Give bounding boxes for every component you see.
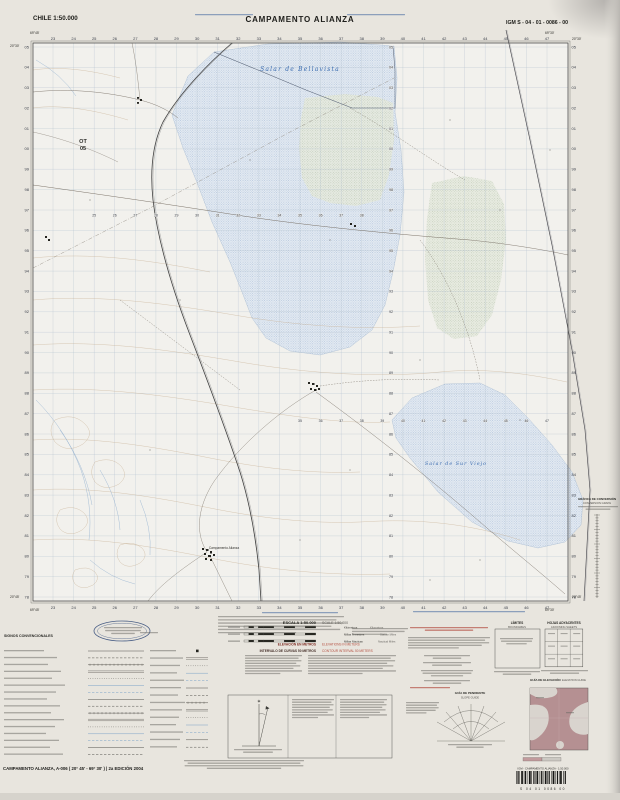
map-body: Salar de Bellavista Salar de Sur Viejo C… (10, 30, 591, 612)
neighbor-sheet-ref-line1: OT (79, 139, 87, 145)
easting-bottom: 25 (92, 605, 97, 610)
scale-bar-segment (249, 640, 254, 642)
northing-left: 91 (25, 329, 30, 334)
northing-right: 79 (572, 574, 577, 579)
legend-label (4, 705, 60, 706)
easting-top: 47 (545, 36, 550, 41)
easting-top: 39 (380, 36, 385, 41)
barcode-bar (516, 771, 517, 784)
corner-lon-ne: 69°30' (545, 31, 555, 35)
easting-top: 27 (133, 36, 138, 41)
easting-mid: 28 (154, 214, 158, 218)
fine-print-line (448, 744, 492, 745)
fine-print-line (500, 638, 533, 639)
legend-label (4, 733, 46, 734)
northing-interior: 05 (389, 45, 393, 49)
northing-right: 95 (572, 248, 577, 253)
fine-print-line (340, 707, 382, 708)
legend-label (4, 726, 55, 727)
northing-interior: 87 (389, 412, 393, 416)
northing-left: 78 (25, 594, 30, 599)
adjoining-sheet-name (548, 646, 555, 647)
salar-bellavista-label: Salar de Bellavista (260, 66, 340, 73)
legend-label (150, 739, 180, 740)
corner-lat-ne: 20°30' (572, 37, 582, 41)
vegetation-polygon-1 (299, 94, 394, 206)
scale-bar-left-label (228, 634, 240, 635)
contour-interval-en: CONTOUR INTERVAL 50 METERS (322, 649, 373, 653)
slope-guide-title-es: GUÍA DE PENDIENTE (455, 690, 485, 695)
easting-mid: 36 (319, 419, 323, 423)
escala-label: ESCALA 1:50.000 (283, 620, 317, 625)
northing-interior: 90 (389, 351, 393, 355)
fine-print-line (292, 699, 334, 700)
barcode-bar (559, 771, 560, 784)
barcode-bar (547, 771, 548, 784)
fine-print-line (308, 668, 383, 669)
easting-bottom: 41 (421, 605, 426, 610)
northing-right: 01 (572, 126, 577, 131)
fine-print-line (536, 697, 544, 698)
fine-print-line (541, 670, 588, 671)
fine-print-line (406, 702, 439, 703)
northing-interior: 82 (389, 514, 393, 518)
barcode-bar (560, 771, 562, 784)
fine-print-line (347, 14, 405, 15)
scan-bottom-edge (0, 793, 620, 800)
fine-print-line (423, 673, 472, 674)
northing-right: 92 (572, 309, 577, 314)
legend-label (4, 678, 52, 679)
northing-interior: 98 (389, 188, 393, 192)
fine-print-line (410, 687, 450, 688)
contour-interval-es: INTERVALO DE CURVAS 50 METROS (260, 649, 316, 653)
fine-print-line (308, 665, 393, 666)
legend-label (150, 665, 180, 666)
fine-print-line (340, 712, 380, 713)
corner-lat-se: 20°45' (572, 595, 582, 599)
northing-right: 88 (572, 391, 577, 396)
legend-symbol (196, 650, 199, 653)
scale-bar-unit-en: Nautical Miles (378, 639, 396, 643)
northing-left: 04 (25, 65, 30, 70)
easting-bottom: 31 (215, 605, 220, 610)
fine-print-line (185, 765, 304, 766)
easting-bottom: 32 (236, 605, 241, 610)
fine-print-line (292, 709, 333, 710)
corner-lat-nw: 20°30' (10, 44, 20, 48)
northing-interior: 89 (389, 371, 393, 375)
northing-interior: 91 (389, 330, 393, 334)
barcode-bar (529, 771, 531, 784)
easting-top: 44 (483, 36, 488, 41)
fine-print-line (218, 616, 344, 617)
settlement-label: Campamento Alianza (209, 546, 240, 550)
easting-mid: 26 (113, 214, 117, 218)
fine-print-line (340, 699, 387, 700)
conversion-graph-title-es: GRÁFICA DE CONVERSIÓN (578, 496, 616, 501)
easting-top: 23 (51, 36, 56, 41)
fine-print-line (501, 641, 532, 642)
legend-label (4, 664, 48, 665)
fine-print-line (308, 670, 396, 671)
adjoining-title-es: HOJAS ADYACENTES (547, 621, 580, 625)
northing-left: 05 (25, 44, 30, 49)
easting-mid: 35 (298, 419, 302, 423)
fine-print-line (425, 630, 473, 631)
fine-print-line (245, 655, 302, 656)
legend-label (4, 754, 63, 755)
northing-left: 80 (25, 554, 30, 559)
easting-mid: 44 (483, 419, 487, 423)
northing-left: 02 (25, 105, 30, 110)
easting-mid: 27 (133, 214, 137, 218)
legend-label (4, 747, 50, 748)
legend-label (150, 694, 178, 695)
northing-left: 83 (25, 492, 30, 497)
northing-left: 94 (25, 268, 30, 273)
northing-right: 02 (572, 105, 577, 110)
fine-print-line (424, 655, 470, 656)
scale-bar-segment (258, 640, 263, 642)
legend-label (150, 709, 182, 710)
legend-title: SIGNOS CONVENCIONALES (4, 634, 54, 638)
fine-print-line (423, 662, 471, 663)
slope-guide-title-en: SLOPE GUIDE (461, 696, 479, 700)
northing-left: 84 (25, 472, 30, 477)
northing-interior: 03 (389, 86, 393, 90)
barcode-bar (535, 771, 536, 784)
northing-left: 82 (25, 513, 30, 518)
barcode-bar (541, 771, 542, 784)
fine-print-line (308, 658, 391, 659)
barcode-bar (557, 771, 558, 784)
fine-print-line (218, 619, 336, 620)
barcode-bar (531, 771, 532, 784)
barcode-bar (533, 771, 534, 784)
northing-left: 97 (25, 207, 30, 212)
legend-label (4, 671, 61, 672)
barcode-bar (524, 771, 525, 784)
elevation-es: ELEVACIÓN EN METROS (278, 642, 316, 647)
corner-lon-se: 69°30' (545, 608, 555, 612)
footer-sheet-line: CAMPAMENTO ALIANZA, A-006 ( 20° 45' - 69… (3, 766, 144, 771)
northing-left: 03 (25, 85, 30, 90)
northing-right: 87 (572, 411, 577, 416)
fine-print-line (431, 675, 463, 676)
easting-top: 29 (174, 36, 179, 41)
elevation-guide-title-es: GUÍA DE ELEVACIÓN (530, 677, 561, 682)
northing-left: 00 (25, 146, 30, 151)
easting-bottom: 46 (524, 605, 529, 610)
northing-left: 87 (25, 411, 30, 416)
northing-interior: 95 (389, 249, 393, 253)
northing-interior: 92 (389, 310, 393, 314)
northing-left: 79 (25, 574, 30, 579)
easting-mid: 47 (545, 419, 549, 423)
fine-print-line (245, 673, 280, 674)
scanned-map-sheet: Salar de Bellavista Salar de Sur Viejo C… (0, 0, 620, 800)
northing-interior: 04 (389, 66, 393, 70)
easting-top: 28 (154, 36, 159, 41)
northing-left: 81 (25, 533, 30, 538)
easting-bottom: 39 (380, 605, 385, 610)
legend-label (150, 657, 183, 658)
legend-label (150, 717, 179, 718)
fine-print-line (245, 660, 301, 661)
easting-top: 30 (195, 36, 200, 41)
northing-left: 96 (25, 228, 30, 233)
northing-interior: 93 (389, 290, 393, 294)
northing-interior: 81 (389, 534, 393, 538)
easting-top: 46 (524, 36, 529, 41)
legend-label (150, 672, 177, 673)
fine-print-line (586, 509, 611, 510)
northing-right: 04 (572, 65, 577, 70)
easting-bottom: 23 (51, 605, 56, 610)
corner-lon-sw: 69°45' (30, 608, 40, 612)
legend-label (4, 712, 51, 713)
fine-print-line (503, 674, 532, 675)
limits-title-es: LÍMITES (511, 620, 524, 625)
fine-print-line (262, 612, 338, 613)
northing-right: 00 (572, 146, 577, 151)
northing-right: 84 (572, 472, 577, 477)
easting-bottom: 26 (113, 605, 118, 610)
fine-print-line (218, 626, 331, 627)
easting-bottom: 24 (71, 605, 76, 610)
easting-top: 35 (298, 36, 303, 41)
elevation-guide-inset (523, 688, 588, 761)
fine-print-line (410, 627, 488, 628)
northing-interior: 01 (389, 127, 393, 131)
conversion-graph-title-en: CONVERSION GRAPH (583, 501, 611, 505)
scale-bar-unit-en: Statute Miles (380, 632, 397, 636)
fine-print-line (406, 712, 426, 713)
fine-print-line (308, 673, 363, 674)
easting-bottom: 44 (483, 605, 488, 610)
easting-top: 31 (215, 36, 220, 41)
northing-interior: 85 (389, 453, 393, 457)
fine-print-line (494, 671, 540, 672)
fine-print-line (408, 637, 490, 638)
northing-interior: 79 (389, 575, 393, 579)
fine-print-line (340, 714, 387, 715)
fine-print-line (424, 680, 470, 681)
fine-print-line (245, 668, 293, 669)
easting-mid: 38 (360, 214, 364, 218)
northing-right: 97 (572, 207, 577, 212)
northing-interior: 94 (389, 269, 393, 273)
easting-mid: 32 (236, 214, 240, 218)
easting-top: 36 (318, 36, 323, 41)
barcode-bar (525, 771, 526, 784)
barcode-bar (563, 771, 564, 784)
easting-mid: 29 (175, 214, 179, 218)
easting-mid: 42 (442, 419, 446, 423)
northing-interior: 84 (389, 473, 393, 477)
northing-interior: 02 (389, 106, 393, 110)
barcode-bar (555, 771, 556, 784)
fine-print-line (413, 611, 525, 612)
easting-top: 41 (421, 36, 426, 41)
fine-print-line (308, 655, 396, 656)
northing-interior: 88 (389, 392, 393, 396)
barcode-bar (519, 771, 520, 784)
northing-interior: 00 (389, 147, 393, 151)
fine-print-line (456, 747, 483, 748)
fine-print-line (245, 663, 296, 664)
northing-interior: 78 (389, 595, 393, 599)
legend-label (150, 731, 183, 732)
fine-print-line (188, 763, 301, 764)
fine-print-line (340, 709, 386, 710)
scale-bar-unit-es: Kilómetros (344, 625, 358, 629)
easting-bottom: 45 (504, 605, 509, 610)
fine-print-line (408, 645, 482, 646)
northing-right: 82 (572, 513, 577, 518)
legend-label (4, 719, 64, 720)
fine-print-line (550, 673, 579, 674)
northing-right: 86 (572, 431, 577, 436)
northing-left: 01 (25, 126, 30, 131)
fine-print-line (545, 754, 561, 755)
fine-print-line (207, 768, 281, 769)
salar-sur-viejo-label: Salar de Sur Viejo (425, 461, 487, 467)
easting-top: 24 (71, 36, 76, 41)
easting-mid: 41 (422, 419, 426, 423)
northing-right: 81 (572, 533, 577, 538)
fine-print-line (218, 632, 296, 633)
easting-bottom: 28 (154, 605, 159, 610)
easting-mid: 37 (339, 214, 343, 218)
fine-print-line (111, 633, 135, 634)
northing-left: 89 (25, 370, 30, 375)
easting-top: 34 (277, 36, 282, 41)
scale-bar-unit-es: Millas Terrestres (344, 632, 365, 636)
easting-bottom: 30 (195, 605, 200, 610)
legend-label (4, 685, 65, 686)
northing-left: 88 (25, 391, 30, 396)
easting-bottom: 37 (339, 605, 344, 610)
barcode-bar (537, 771, 539, 784)
elevation-en: ELEVATIONS IN METERS (322, 643, 360, 647)
northing-right: 93 (572, 289, 577, 294)
easting-mid: 33 (257, 214, 261, 218)
easting-mid: 30 (195, 214, 199, 218)
neighbor-sheet-ref-line2: 05 (80, 146, 86, 152)
easting-top: 42 (442, 36, 447, 41)
easting-bottom: 34 (277, 605, 282, 610)
easting-mid: 35 (298, 214, 302, 218)
sheet-title: CAMPAMENTO ALIANZA (246, 15, 355, 24)
adjoining-sheet-name (573, 646, 580, 647)
legend-label (4, 691, 56, 692)
country-scale-label: CHILE 1:50.000 (33, 15, 78, 22)
barcode-bar (545, 771, 547, 784)
northing-interior: 80 (389, 555, 393, 559)
northing-left: 95 (25, 248, 30, 253)
adjoining-sheet-name (548, 658, 555, 659)
northing-interior: 83 (389, 493, 393, 497)
sheet-code: IGM S - 04 - 01 - 0086 - 00 (506, 20, 568, 26)
northing-interior: 97 (389, 208, 393, 212)
easting-mid: 46 (524, 419, 528, 423)
legend-label (150, 724, 176, 725)
limits-title-en: BOUNDARIES (508, 625, 526, 629)
corner-lat-sw: 20°45' (10, 595, 20, 599)
fine-print-line (408, 640, 485, 641)
fine-print-line (245, 658, 299, 659)
fine-print-line (292, 714, 334, 715)
adjoining-sheet-name (561, 633, 568, 634)
easting-bottom: 29 (174, 605, 179, 610)
northing-right: 90 (572, 350, 577, 355)
northing-left: 98 (25, 187, 30, 192)
legend-label (4, 698, 47, 699)
fine-print-line (104, 627, 142, 628)
fine-print-line (578, 506, 618, 507)
northing-interior: 99 (389, 168, 393, 172)
adjoining-sheet-name (573, 633, 580, 634)
adjoining-sheet-name (561, 658, 568, 659)
northing-right: 80 (572, 554, 577, 559)
easting-bottom: 35 (298, 605, 303, 610)
northing-right: 89 (572, 370, 577, 375)
fine-print-line (243, 752, 273, 753)
elevation-guide-title-en: ELEVATION GUIDE (562, 678, 586, 682)
northing-right: 05 (572, 44, 577, 49)
fine-print-line (340, 704, 387, 705)
fine-print-line (408, 642, 489, 643)
fine-print-line (184, 760, 304, 761)
fine-print-line (218, 629, 340, 630)
star-symbol: ✶ (257, 699, 261, 705)
adjoining-sheet-name (548, 633, 555, 634)
easting-mid: 37 (339, 419, 343, 423)
easting-bottom: 36 (318, 605, 323, 610)
legend-label (150, 746, 177, 747)
barcode-bar (540, 771, 541, 784)
easting-bottom: 27 (133, 605, 138, 610)
barcode-bar (565, 771, 566, 784)
fine-print-line (308, 660, 395, 661)
legend-label (150, 680, 184, 681)
easting-bottom: 38 (360, 605, 365, 610)
northing-left: 90 (25, 350, 30, 355)
fine-print-line (421, 670, 473, 671)
easting-mid: 31 (216, 214, 220, 218)
legend-label (4, 657, 57, 658)
legend-label (4, 650, 44, 651)
legend-label (150, 702, 185, 703)
easting-mid: 45 (504, 419, 508, 423)
fine-print-line (408, 647, 459, 648)
easting-top: 37 (339, 36, 344, 41)
northing-left: 93 (25, 289, 30, 294)
easting-mid: 36 (319, 214, 323, 218)
fine-print-line (506, 643, 526, 644)
barcode-bar (551, 771, 552, 784)
easting-top: 26 (113, 36, 118, 41)
fine-print-line (245, 670, 302, 671)
easting-top: 38 (360, 36, 365, 41)
easting-top: 43 (462, 36, 467, 41)
northing-left: 99 (25, 167, 30, 172)
easting-top: 32 (236, 36, 241, 41)
easting-bottom: 43 (462, 605, 467, 610)
fine-print-line (105, 630, 141, 631)
